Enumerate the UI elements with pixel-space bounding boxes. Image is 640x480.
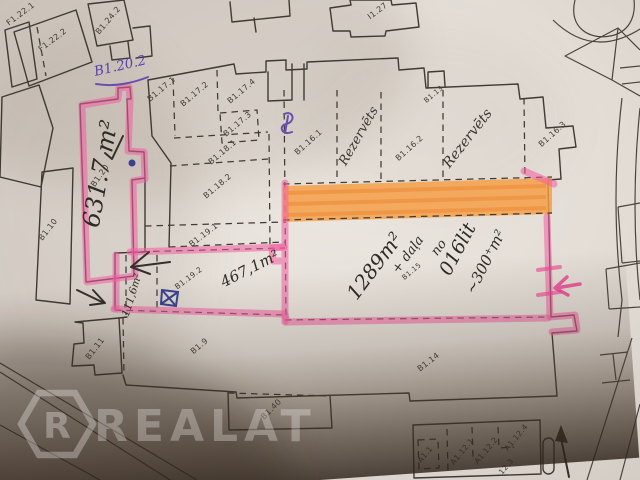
watermark-r-letter: R xyxy=(43,406,71,447)
floor-plan-drawing: F1.22.1F1.22.2B1.24.2I1.27B1.13B1.17.1B1… xyxy=(0,0,640,480)
site-plan-photo: F1.22.1F1.22.2B1.24.2I1.27B1.13B1.17.1B1… xyxy=(0,0,640,480)
watermark-text: REALAT xyxy=(94,401,317,452)
